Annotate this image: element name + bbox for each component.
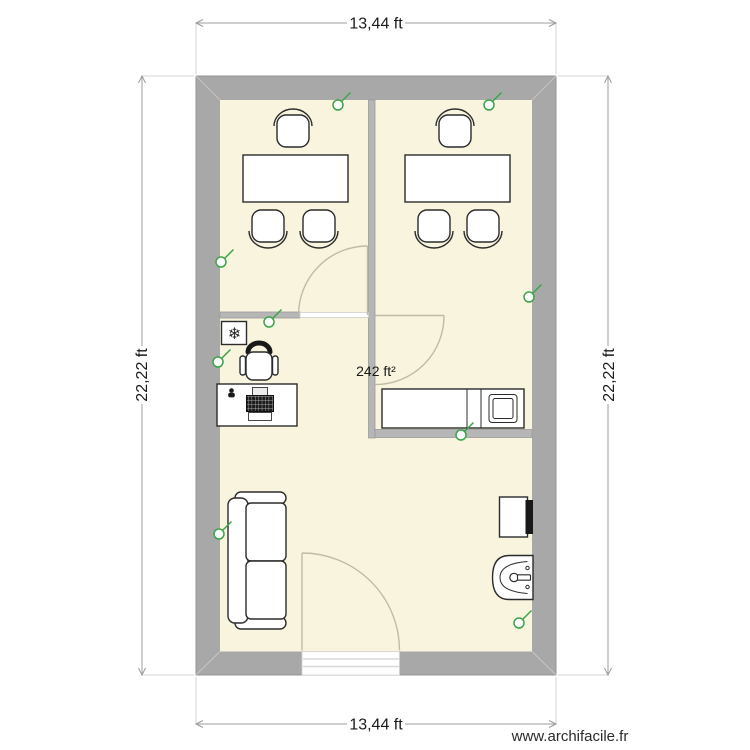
tv[interactable]: [500, 497, 534, 537]
webcam-icon: [228, 393, 235, 398]
chair[interactable]: [415, 210, 453, 248]
seat: [246, 352, 272, 380]
chair[interactable]: [300, 210, 338, 248]
watermark: www.archifacile.fr: [511, 728, 629, 745]
sofa-backrest: [228, 498, 248, 623]
desk[interactable]: [243, 155, 348, 202]
partition-wall-vertical[interactable]: [369, 100, 376, 438]
sofa[interactable]: [228, 492, 286, 629]
armrest: [273, 356, 279, 375]
partition-wall-bedroom[interactable]: [375, 430, 532, 438]
armrest: [240, 356, 246, 375]
dimension-left-label: 22,22 ft: [134, 348, 151, 402]
desk[interactable]: [405, 155, 510, 202]
sofa-seat-cushion: [246, 503, 286, 561]
tv-back: [526, 500, 534, 534]
chair[interactable]: [436, 109, 474, 147]
snowflake-icon: ❄: [228, 326, 241, 343]
faucet-icon: [510, 573, 518, 581]
chair[interactable]: [249, 210, 287, 248]
tv-screen: [500, 497, 528, 537]
sofa-seat-cushion: [246, 561, 286, 619]
chair[interactable]: [274, 109, 312, 147]
floor-plan-svg: 13,44 ft 13,44 ft 22,22 ft 22,22 ft: [0, 0, 750, 750]
partition-wall-horizontal[interactable]: [220, 312, 300, 318]
dimension-top-label: 13,44 ft: [349, 16, 403, 33]
laptop-tray: [249, 413, 272, 421]
laptop-keyboard: [247, 396, 274, 412]
dimension-bottom-label: 13,44 ft: [349, 717, 403, 734]
laptop-hinge: [253, 388, 268, 396]
sink[interactable]: [493, 556, 534, 600]
room-area-label[interactable]: 242 ft²: [356, 363, 396, 379]
door-threshold: [302, 652, 400, 676]
dimension-right-label: 22,22 ft: [601, 348, 618, 402]
webcam-icon: [229, 388, 234, 393]
bedroom-furniture: [382, 389, 524, 428]
chair[interactable]: [464, 210, 502, 248]
floor-plan-canvas: 13,44 ft 13,44 ft 22,22 ft 22,22 ft: [0, 0, 750, 750]
faucet-handle: [518, 575, 531, 580]
door-threshold: [300, 313, 369, 318]
